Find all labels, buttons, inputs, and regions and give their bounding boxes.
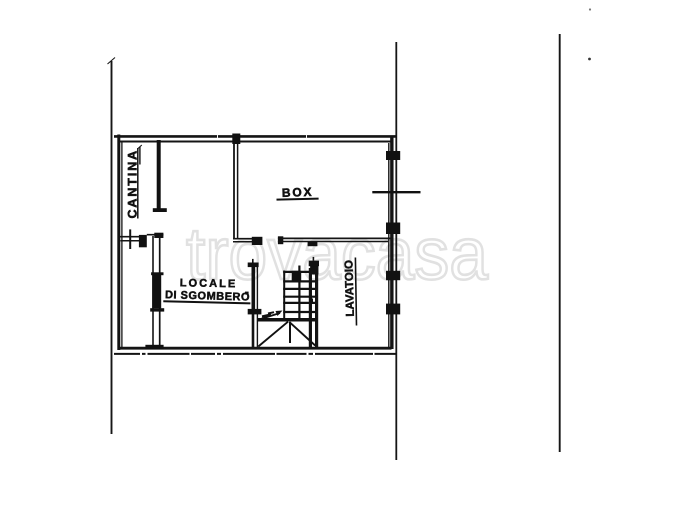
svg-text:LOCALE: LOCALE (180, 277, 238, 290)
svg-text:BOX: BOX (282, 185, 314, 200)
